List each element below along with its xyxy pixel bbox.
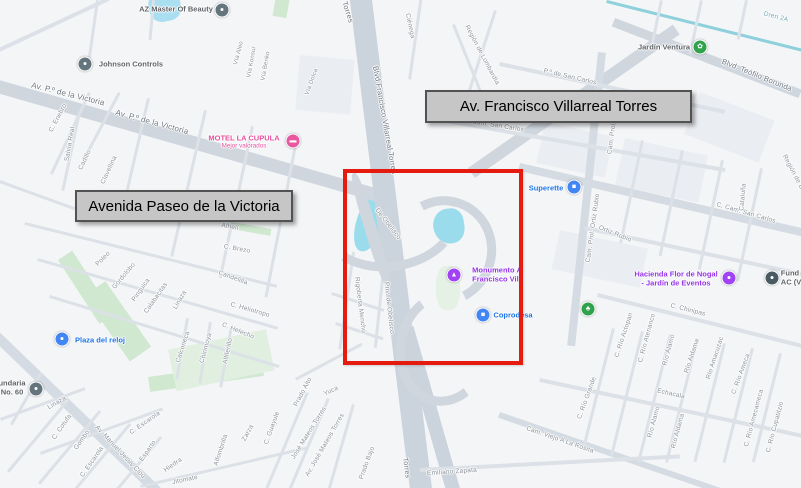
fundacion-ac-label[interactable]: FundAC (V [781,269,801,288]
annotation-box-avenida-paseo: Avenida Paseo de la Victoria [75,190,293,222]
street-label: Vía Benko [260,51,271,81]
street-label: Poleo [94,250,111,267]
highlight-rectangle [343,169,523,365]
motel-la-cupula-label[interactable]: MOTEL LA CUPULAMejor valorados [208,133,279,150]
street-label: Clavellina [99,155,118,185]
street-label: Río Aldama [683,338,701,374]
secundaria-no-60-icon[interactable]: ● [29,382,44,397]
jardin-ventura-icon[interactable]: ✿ [693,40,708,55]
street-label: Vía Konsur [246,46,257,78]
plaza-del-reloj-label[interactable]: Plaza del reloj [75,335,125,344]
annotation-box-avenida-paseo-label: Avenida Paseo de la Victoria [88,198,279,215]
motel-la-cupula-icon[interactable]: ▬ [286,134,301,149]
street-label: Zarza [241,424,255,443]
road-segment [295,55,355,115]
annotation-box-av-francisco: Av. Francisco Villarreal Torres [425,90,692,123]
johnson-controls-icon[interactable]: ● [78,57,93,72]
street-label: C. Brezo [223,243,251,255]
street-label: Región de Lombardía [463,24,500,86]
road-segment [684,92,775,163]
street-label: Cataluña [738,183,747,211]
street-label: C. Guayule [263,411,281,446]
plaza-del-reloj-icon[interactable]: ● [55,332,70,347]
street-label: Ciénega [404,13,416,40]
street-label: Candelilla [217,269,248,286]
street-label: C. Escarola [79,445,105,478]
superette-icon[interactable]: ■ [567,180,582,195]
street-label: Región de E [781,154,801,191]
street-label: Yuca [323,385,340,398]
johnson-controls-label[interactable]: Johnson Controls [99,59,163,68]
park-icon[interactable]: ♣ [581,302,596,317]
street-label: Esparto [138,439,157,463]
secundaria-no-60-label[interactable]: undariaNo. 60 [0,379,26,398]
street-label: Echacala [656,387,685,400]
street-label: Salvia Real [64,126,77,162]
az-master-of-beauty-icon[interactable]: ● [215,3,230,18]
hacienda-flor-de-nogal-label[interactable]: Hacienda Flor de Nogal- Jardín de Evento… [634,270,717,289]
street-label: Prado Bajo [358,446,376,481]
street-label: Blvd. Teófilo Borunda [721,57,794,93]
street-label: Cadillo [77,149,92,171]
superette-label[interactable]: Superette [529,183,564,192]
jardin-ventura-label[interactable]: Jardín Ventura [638,42,690,51]
street-label: Alfombrilla [213,433,230,466]
street-label: Dren 2A [763,10,789,23]
street-label: C. Río Actopan [613,312,634,358]
road-segment [273,0,290,18]
az-master-of-beauty-label[interactable]: AZ Master Of Beauty [139,4,213,13]
road-segment [7,398,70,473]
annotation-box-av-francisco-label: Av. Francisco Villarreal Torres [460,98,657,115]
street-label: Río Álamo [661,334,676,367]
map-canvas[interactable]: Av. P.º de la VictoriaAv. P.º de la Vict… [0,0,801,488]
street-label: Vía Aleo [233,41,245,66]
fundacion-ac-icon[interactable]: ● [765,271,780,286]
street-label: Hiedra [163,456,184,473]
hacienda-flor-de-nogal-icon[interactable]: ● [722,271,737,286]
